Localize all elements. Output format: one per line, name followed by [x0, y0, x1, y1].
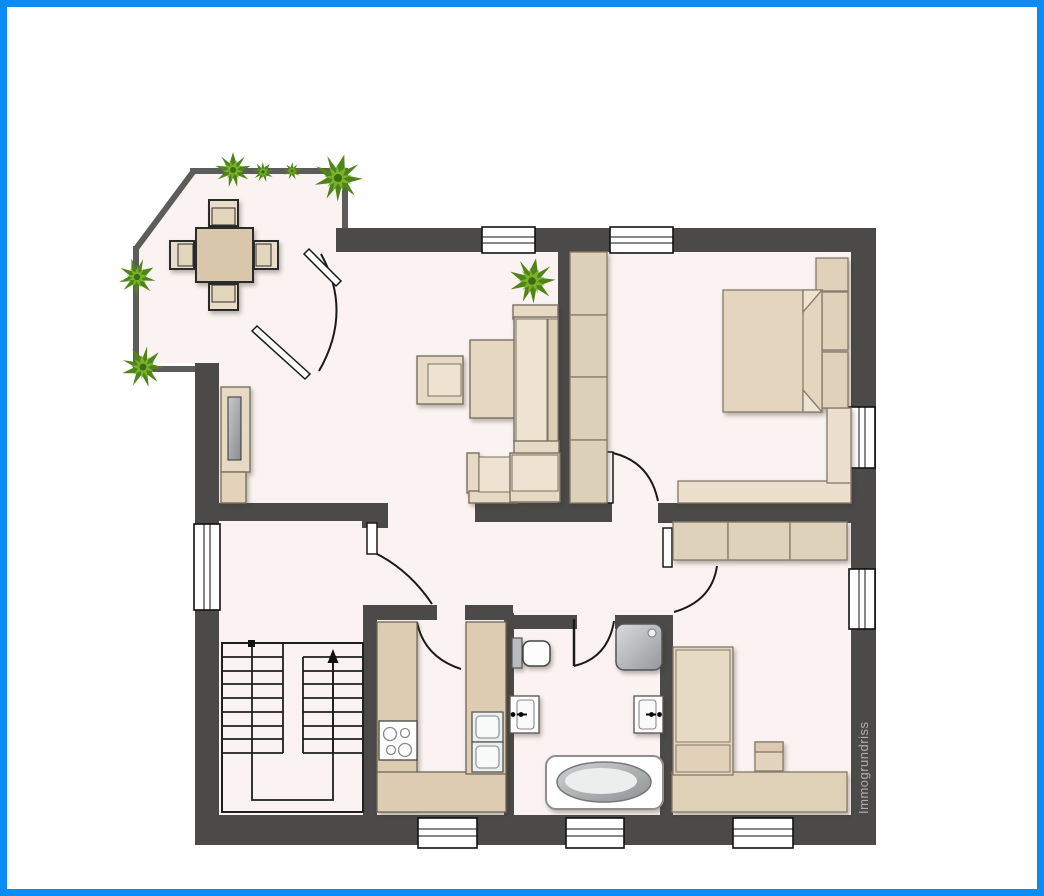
sideboard-bedroom2 — [672, 772, 847, 812]
single-bed — [673, 647, 733, 775]
shower — [616, 624, 662, 670]
wall-top — [336, 228, 876, 252]
stove — [379, 721, 417, 760]
chair-bottom — [209, 284, 238, 310]
double-sink — [472, 712, 503, 772]
floorplan-drawing: Immogrundriss — [0, 0, 1044, 896]
stool — [755, 742, 783, 771]
counter-bottom — [377, 772, 506, 812]
window-bedroom2-right — [849, 569, 875, 629]
window-stairhall-left — [194, 524, 220, 610]
chair-left — [170, 241, 194, 269]
wall-east-south — [658, 503, 851, 523]
window-bedroom2-bottom — [733, 818, 793, 848]
coffee-table — [470, 340, 515, 418]
washbasin-left — [510, 696, 539, 733]
window-bedroom1-top — [610, 227, 673, 253]
wall-bath-north-left — [513, 615, 577, 629]
wardrobe-bedroom2 — [673, 522, 847, 560]
bathtub — [546, 756, 663, 809]
wall-kitchen-north — [377, 605, 437, 620]
dining-table — [196, 228, 253, 282]
watermark-text: Immogrundriss — [856, 722, 871, 814]
window-kitchen-bottom — [418, 818, 477, 848]
washbasin-right — [634, 696, 663, 733]
chair-top — [209, 200, 238, 226]
wall-mid-south — [475, 503, 612, 522]
wall-living-south — [215, 503, 388, 521]
window-bath-bottom — [566, 818, 624, 848]
armchair — [417, 356, 463, 404]
double-bed — [723, 290, 822, 412]
wall-stair-kitchen — [363, 605, 377, 815]
floorplan-screenshot: Immogrundriss — [0, 0, 1044, 896]
window-bedroom1-right — [849, 407, 875, 468]
window-living-top — [482, 227, 535, 253]
wardrobe-bedroom1 — [570, 252, 607, 503]
chair-right — [254, 241, 278, 269]
toilet — [512, 638, 550, 668]
tv-sideboard — [221, 387, 250, 503]
